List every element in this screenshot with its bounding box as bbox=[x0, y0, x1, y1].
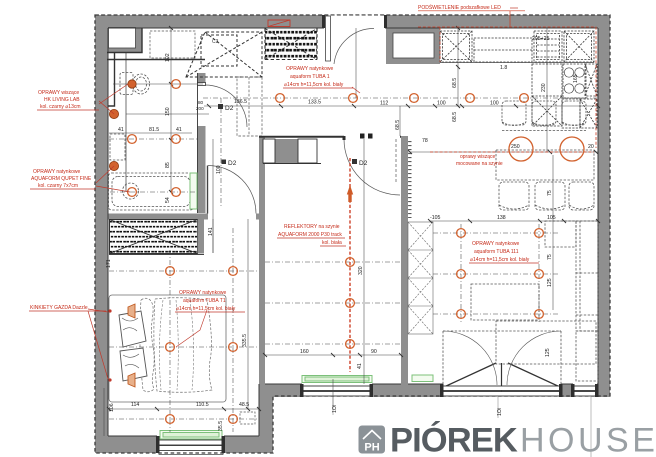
svg-text:OPRAWY natynkowe: OPRAWY natynkowe bbox=[33, 169, 80, 175]
svg-text:PIÓREK: PIÓREK bbox=[390, 420, 518, 457]
svg-text:141: 141 bbox=[208, 227, 214, 236]
svg-text:OPRAWY natynkowe: OPRAWY natynkowe bbox=[472, 241, 519, 247]
svg-text:1.8: 1.8 bbox=[500, 65, 507, 71]
svg-text:⌀14cm h=11,5cm kol. biały: ⌀14cm h=11,5cm kol. biały bbox=[470, 257, 530, 263]
svg-text:aquaform TUBA T1: aquaform TUBA T1 bbox=[183, 298, 226, 304]
svg-text:100: 100 bbox=[490, 101, 499, 107]
svg-text:125: 125 bbox=[545, 348, 551, 357]
svg-text:C3: C3 bbox=[212, 39, 219, 45]
svg-text:68.5: 68.5 bbox=[452, 112, 458, 122]
svg-text:⌀14cm h=11,5cm kol. biały: ⌀14cm h=11,5cm kol. biały bbox=[284, 82, 344, 88]
svg-text:200: 200 bbox=[196, 106, 204, 111]
svg-text:REFLEKTORY na szynie: REFLEKTORY na szynie bbox=[284, 224, 340, 230]
svg-text:kol. czarny ⌀13cm: kol. czarny ⌀13cm bbox=[40, 104, 81, 110]
svg-text:HK LIVING LAB: HK LIVING LAB bbox=[44, 97, 80, 103]
svg-text:136.5: 136.5 bbox=[234, 99, 247, 105]
svg-text:kol. biała: kol. biała bbox=[322, 240, 342, 246]
svg-text:230: 230 bbox=[541, 83, 547, 92]
svg-text:90: 90 bbox=[371, 349, 377, 355]
svg-text:35.5: 35.5 bbox=[218, 421, 224, 431]
svg-text:41: 41 bbox=[176, 127, 182, 133]
svg-text:250: 250 bbox=[511, 144, 520, 150]
svg-text:AQUAFORM QUPET FINE: AQUAFORM QUPET FINE bbox=[31, 176, 92, 182]
svg-text:102: 102 bbox=[165, 53, 171, 62]
svg-text:81.5: 81.5 bbox=[149, 127, 159, 133]
svg-text:78: 78 bbox=[422, 138, 428, 144]
svg-text:PH: PH bbox=[364, 442, 379, 454]
svg-text:aquaform TUBA 1: aquaform TUBA 1 bbox=[290, 74, 330, 80]
svg-text:1Oi: 1Oi bbox=[497, 408, 503, 416]
svg-text:48.5: 48.5 bbox=[239, 402, 249, 408]
svg-text:171: 171 bbox=[106, 259, 112, 268]
svg-text:1Oi: 1Oi bbox=[332, 405, 338, 413]
svg-text:KINKIETY GAZDA Dazzle: KINKIETY GAZDA Dazzle bbox=[30, 305, 88, 311]
svg-text:aquaform TUBA 111: aquaform TUBA 111 bbox=[474, 249, 519, 255]
svg-text:150: 150 bbox=[165, 107, 171, 116]
svg-text:112: 112 bbox=[380, 101, 388, 107]
svg-text:75: 75 bbox=[547, 190, 553, 196]
svg-text:D2: D2 bbox=[228, 160, 237, 167]
svg-text:41: 41 bbox=[118, 127, 124, 133]
svg-text:54: 54 bbox=[165, 197, 171, 203]
svg-text:100: 100 bbox=[216, 165, 222, 174]
svg-text:OPRAWY wiszące: OPRAWY wiszące bbox=[38, 90, 79, 96]
svg-text:-105: -105 bbox=[430, 215, 440, 221]
svg-text:D2: D2 bbox=[225, 105, 234, 112]
svg-text:75: 75 bbox=[547, 254, 553, 260]
svg-text:110.5: 110.5 bbox=[196, 402, 209, 408]
svg-text:100: 100 bbox=[437, 101, 446, 107]
svg-text:HOUSE: HOUSE bbox=[520, 422, 656, 457]
svg-text:OPRAWY natynkowe: OPRAWY natynkowe bbox=[179, 290, 226, 296]
svg-text:165: 165 bbox=[573, 74, 579, 83]
svg-text:85: 85 bbox=[165, 162, 171, 168]
svg-text:OPRAWY natynkowe: OPRAWY natynkowe bbox=[286, 66, 333, 72]
svg-text:106: 106 bbox=[109, 403, 115, 412]
svg-text:D2: D2 bbox=[359, 160, 368, 167]
svg-text:mocowane na szynie: mocowane na szynie bbox=[456, 161, 503, 167]
svg-text:41: 41 bbox=[357, 363, 363, 369]
svg-text:205+25: 205+25 bbox=[532, 36, 550, 42]
svg-text:oprawy wiszące: oprawy wiszące bbox=[460, 154, 496, 160]
svg-text:105: 105 bbox=[547, 215, 556, 221]
svg-text:68.5: 68.5 bbox=[452, 78, 458, 88]
svg-text:133.5: 133.5 bbox=[308, 100, 321, 106]
svg-text:AQUAFORM 2000 P30 track: AQUAFORM 2000 P30 track bbox=[278, 232, 342, 238]
svg-text:114: 114 bbox=[131, 402, 139, 408]
svg-text:68.5: 68.5 bbox=[395, 120, 401, 130]
svg-text:138: 138 bbox=[497, 215, 506, 221]
svg-text:335.5: 335.5 bbox=[242, 334, 248, 347]
svg-text:PODŚWIETLENIE podszafkowe LE: PODŚWIETLENIE podszafkowe LED bbox=[418, 3, 501, 11]
svg-text:320: 320 bbox=[358, 266, 364, 275]
svg-text:125: 125 bbox=[547, 278, 553, 287]
svg-text:80: 80 bbox=[198, 100, 204, 105]
svg-text:160: 160 bbox=[300, 349, 309, 355]
svg-text:20: 20 bbox=[588, 144, 594, 150]
svg-text:⌀14cm h=11,5cm kol. biały: ⌀14cm h=11,5cm kol. biały bbox=[176, 306, 236, 312]
svg-text:kol. czarny 7x7cm: kol. czarny 7x7cm bbox=[38, 183, 78, 189]
